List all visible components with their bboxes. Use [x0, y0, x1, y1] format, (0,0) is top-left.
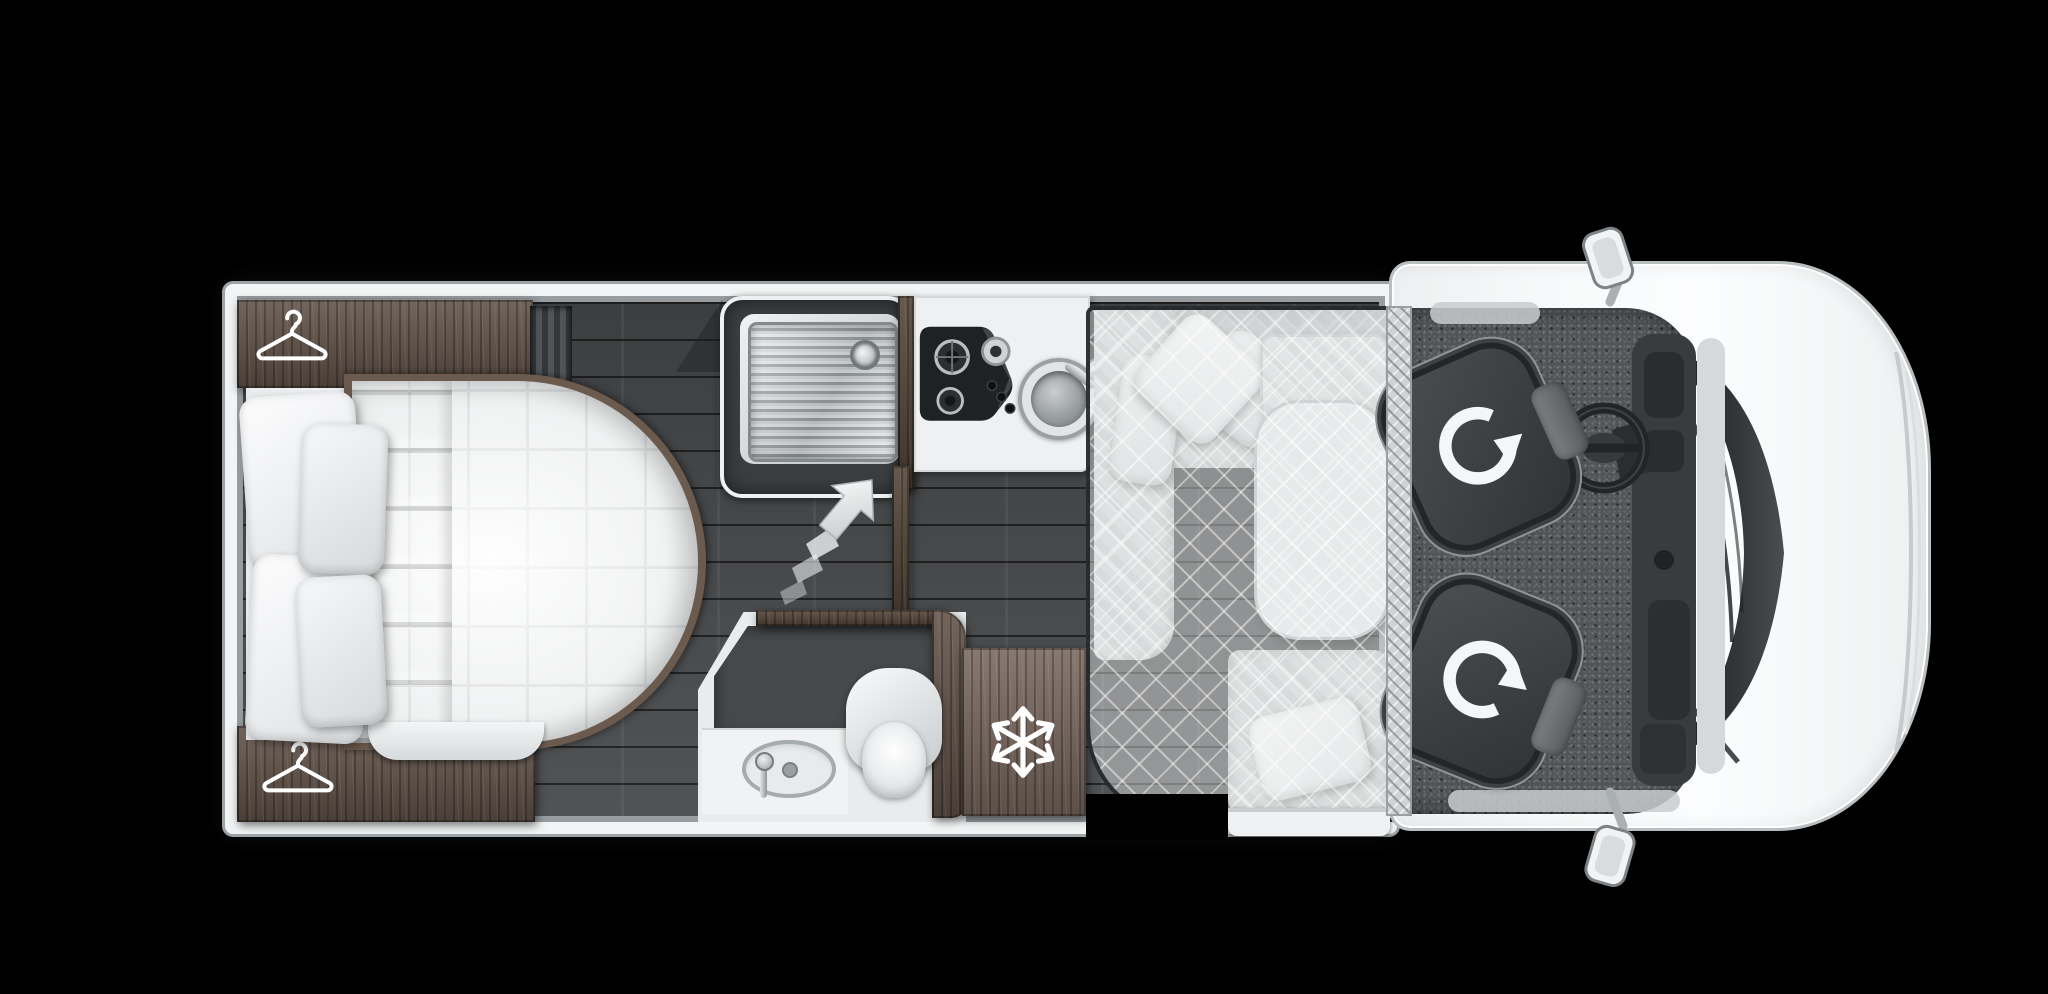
partition-shower-kitchen	[898, 296, 914, 490]
washroom-faucet-base	[755, 752, 774, 771]
entry-door-opening	[1086, 794, 1228, 840]
entry-arrow-icon	[768, 468, 898, 618]
washbasin-drain	[782, 762, 798, 778]
hanger-icon	[258, 744, 338, 800]
shower-tray	[748, 322, 898, 462]
kitchen-hob	[916, 320, 1030, 436]
toilet-bowl	[862, 722, 926, 798]
drop-down-bed-outline	[1086, 306, 1396, 822]
motorhome-floorplan	[0, 0, 2048, 994]
entry-step	[1228, 808, 1390, 836]
bed-pillow	[297, 423, 388, 576]
bed-duvet-drape	[368, 722, 544, 760]
bed-pillow	[294, 574, 388, 728]
cab-step-strip	[1386, 306, 1412, 816]
snowflake-icon	[986, 702, 1060, 782]
hanger-icon	[252, 312, 332, 368]
shower-drain	[850, 340, 880, 370]
